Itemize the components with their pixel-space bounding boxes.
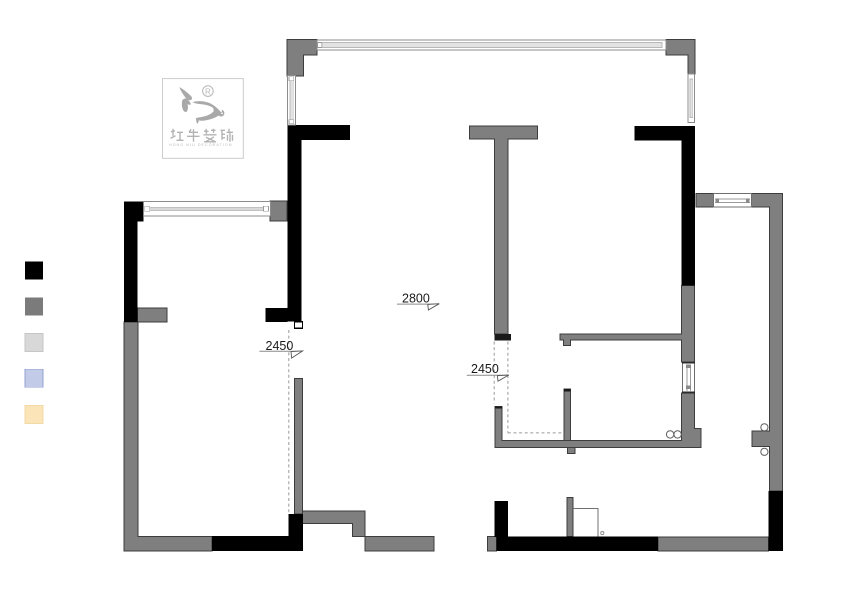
svg-text:2450: 2450 [471, 362, 499, 376]
svg-text:R: R [205, 87, 211, 96]
svg-text:2450: 2450 [266, 339, 294, 353]
svg-text:HONG NIU DECORATION: HONG NIU DECORATION [169, 143, 233, 147]
svg-text:2800: 2800 [402, 291, 430, 305]
